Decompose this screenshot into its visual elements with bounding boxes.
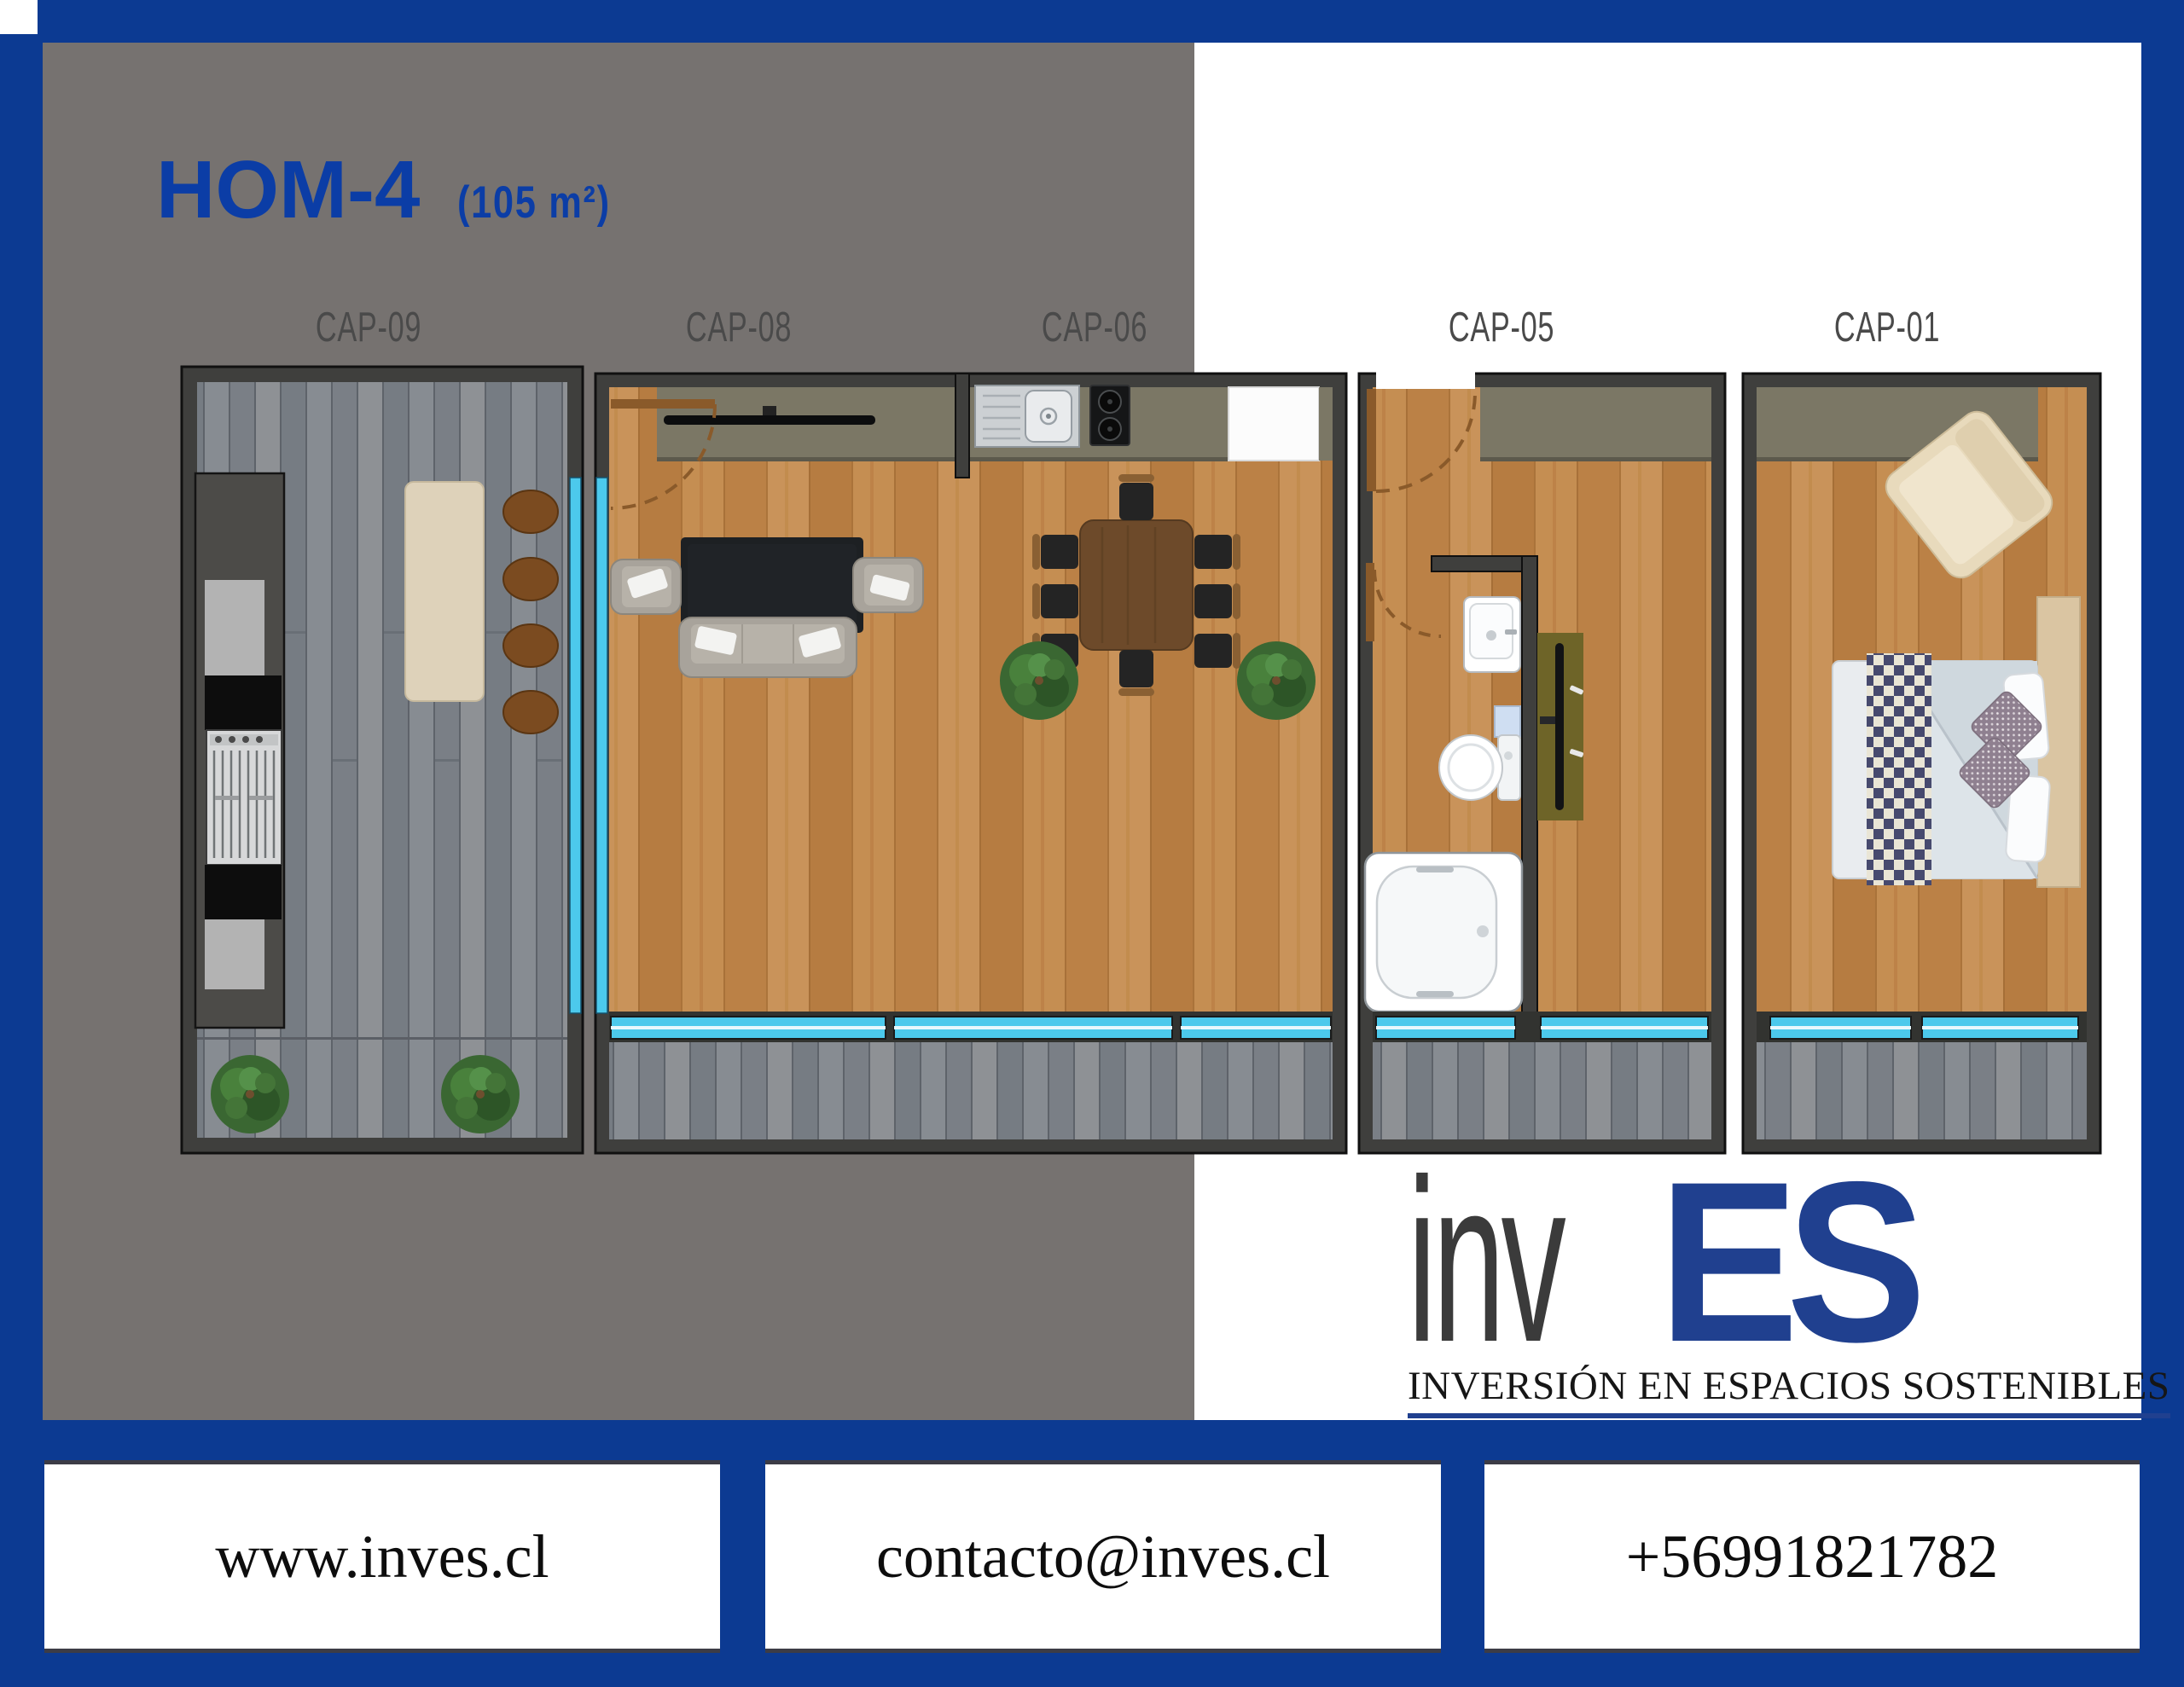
- module-label-cap-06: CAP-06: [1042, 304, 1147, 351]
- window-strip: [1376, 1017, 1708, 1039]
- glass-wall: [596, 478, 607, 1013]
- module-label-cap-08: CAP-08: [686, 304, 792, 351]
- glass-wall: [570, 478, 581, 1013]
- sofa: [679, 617, 857, 677]
- module-bath-hall: [1359, 370, 1725, 1153]
- window-strip: [1770, 1017, 2078, 1039]
- balcony-deck: [609, 1042, 1333, 1139]
- dining-chair: [1118, 474, 1154, 520]
- terrace-bar-table: [405, 482, 484, 701]
- contact-email-box: contacto@inves.cl: [765, 1460, 1441, 1653]
- hall-tv-console: [1537, 633, 1584, 820]
- plant: [211, 1055, 289, 1133]
- company-logo: inv ES INVERSIÓN EN ESPACIOS SOSTENIBLES: [1408, 1170, 2082, 1418]
- logo-text-blue: ES: [1658, 1173, 1914, 1351]
- logo-text-dark: inv: [1408, 1170, 1562, 1351]
- module-label-cap-09: CAP-09: [316, 304, 421, 351]
- fridge: [1228, 387, 1319, 461]
- bath-cabinet: [1495, 706, 1520, 737]
- grill-appliance: [206, 730, 282, 865]
- dining-chair: [1194, 633, 1240, 669]
- title-block: HOM-4 (105 m²): [156, 149, 645, 231]
- contact-website-box: www.inves.cl: [44, 1460, 720, 1653]
- contact-phone-box: +56991821782: [1484, 1460, 2140, 1653]
- dining-chair: [1118, 650, 1154, 696]
- tv-flatscreen: [1555, 643, 1564, 810]
- website-text: www.inves.cl: [215, 1522, 549, 1592]
- plant: [441, 1055, 520, 1133]
- bathtub: [1365, 853, 1522, 1012]
- module-living-dining: [595, 374, 1346, 1153]
- living-wood-floor: [609, 387, 1333, 1012]
- floorplan-drawing: [175, 362, 2129, 1160]
- dining-chair: [1194, 534, 1240, 570]
- plan-title: HOM-4: [156, 149, 420, 231]
- module-label-cap-05: CAP-05: [1449, 304, 1554, 351]
- outdoor-kitchen-counter: [195, 473, 284, 1028]
- armchair-right: [853, 558, 923, 612]
- stove: [1090, 386, 1130, 445]
- plant: [1000, 641, 1078, 720]
- module-bedroom: [1743, 374, 2100, 1153]
- checkered-throw: [1867, 653, 1931, 885]
- plan-area: (105 m²): [457, 180, 611, 225]
- bathroom-sink: [1464, 597, 1520, 672]
- module-terrace: [182, 367, 583, 1153]
- logo-wordmark: inv ES: [1408, 1170, 2082, 1351]
- balcony-deck: [1757, 1042, 2087, 1139]
- kitchen-sink: [975, 386, 1079, 447]
- phone-text: +56991821782: [1626, 1522, 1999, 1592]
- window-strip: [611, 1017, 1331, 1039]
- email-text: contacto@inves.cl: [876, 1522, 1330, 1592]
- dining-chair: [1194, 583, 1240, 619]
- dining-chair: [1032, 583, 1078, 619]
- corner-notch: [0, 0, 38, 34]
- dining-table: [1080, 520, 1193, 650]
- dining-chair: [1032, 534, 1078, 570]
- flyer-page: HOM-4 (105 m²) CAP-09 CAP-08 CAP-06 CAP-…: [0, 0, 2184, 1687]
- plant: [1237, 641, 1316, 720]
- balcony-deck: [1373, 1042, 1711, 1139]
- module-label-cap-01: CAP-01: [1834, 304, 1940, 351]
- toilet: [1439, 735, 1520, 800]
- tv-flatscreen: [664, 415, 875, 425]
- armchair-left: [611, 559, 681, 614]
- closet-shelf: [1480, 387, 1711, 461]
